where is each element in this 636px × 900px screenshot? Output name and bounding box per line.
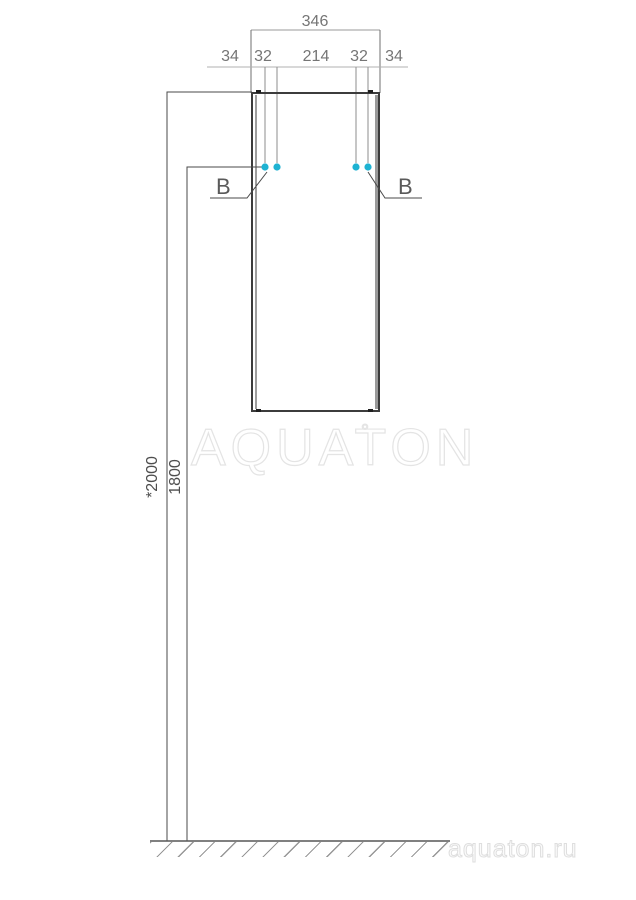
watermark-ring-mark: ° bbox=[361, 421, 369, 444]
watermark-logo: AQUATON bbox=[191, 420, 451, 480]
corner-tick bbox=[256, 409, 261, 412]
corner-tick bbox=[256, 90, 261, 93]
mounting-hole-dot bbox=[273, 163, 280, 170]
dim-segment-32-right: 32 bbox=[339, 49, 379, 65]
mounting-hole-dot bbox=[364, 163, 371, 170]
dim-segment-32-left: 32 bbox=[243, 49, 283, 65]
wall-line-1800 bbox=[187, 167, 262, 841]
corner-tick bbox=[368, 90, 373, 93]
corner-tick bbox=[368, 409, 373, 412]
technical-drawing: 346 34 32 214 32 34 B B *2000 1800 AQUAT… bbox=[0, 0, 636, 900]
cabinet-outline bbox=[252, 93, 379, 411]
floor-hatching bbox=[150, 842, 452, 857]
extension-lines-holes bbox=[265, 67, 368, 163]
mounting-hole-dot bbox=[261, 163, 268, 170]
detail-label-right: B bbox=[398, 176, 413, 198]
dim-overall-width: 346 bbox=[285, 14, 345, 30]
dim-segment-34-right: 34 bbox=[374, 49, 414, 65]
detail-label-left: B bbox=[216, 176, 231, 198]
dim-segment-214: 214 bbox=[296, 49, 336, 65]
website-watermark: aquaton.ru bbox=[448, 835, 578, 864]
dim-height-1800: 1800 bbox=[168, 445, 184, 509]
mounting-hole-dot bbox=[352, 163, 359, 170]
dim-height-2000: *2000 bbox=[145, 445, 161, 509]
